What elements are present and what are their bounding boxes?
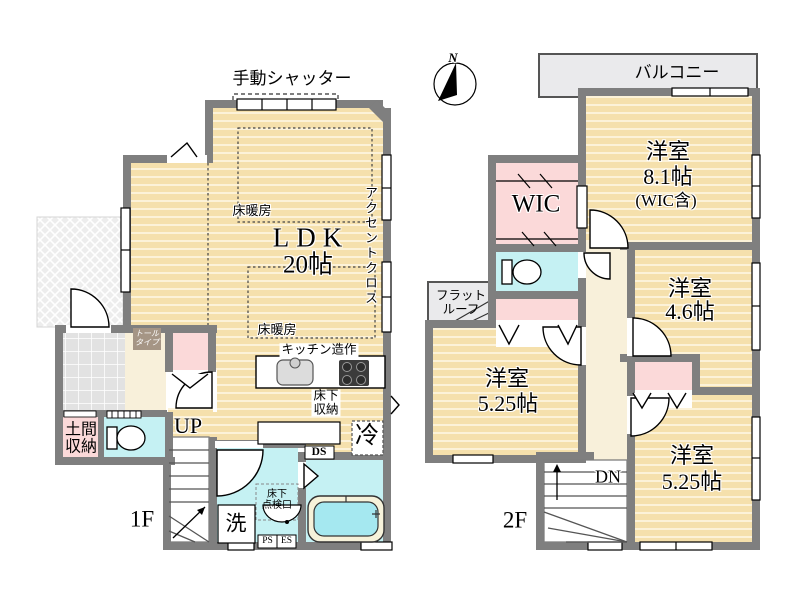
faucet-icon — [290, 358, 300, 368]
floor-heating-label-upper: 床暖房 — [232, 204, 271, 218]
balcony-label: バルコニー — [635, 64, 720, 82]
kitchen-builtin-label: キッチン造作 — [279, 343, 358, 357]
doma-storage-label: 土間 収納 — [65, 422, 97, 457]
wic-label: WIC — [512, 191, 561, 218]
f1-kitchen — [256, 356, 385, 388]
floor1-label: 1F — [130, 508, 154, 533]
room-525R-name: 洋室 — [670, 444, 714, 468]
stairs-up-label: UP — [174, 414, 202, 438]
underfloor-storage-label: 床下 収納 — [311, 390, 340, 417]
ldk-room-size: 20帖 — [283, 252, 333, 279]
room-525L-size: 5.25帖 — [478, 392, 539, 416]
room-46-name: 洋室 — [668, 277, 712, 301]
tall-cabinet-label: トール タイプ — [135, 330, 159, 348]
electric-space-label: ES — [281, 536, 292, 546]
room-main-name: 洋室 — [646, 140, 690, 164]
toilet-2f-icon — [502, 260, 541, 284]
compass-north-label: N — [448, 51, 457, 65]
floor2-label: 2F — [503, 509, 527, 534]
f1-toilet-accordion-door — [107, 411, 141, 418]
room-main-size: 8.1帖 — [643, 165, 693, 189]
accent-cloth-label: アクセントクロス — [363, 186, 377, 306]
wic-door-leaf — [577, 186, 587, 228]
room-525R-size: 5.25帖 — [662, 470, 723, 494]
fridge-label: 冷 — [355, 424, 379, 450]
room-525L-name: 洋室 — [485, 367, 529, 391]
floor-heating-label-lower: 床暖房 — [257, 323, 296, 337]
pipe-space-label: PS — [262, 536, 273, 546]
cupboard — [258, 422, 340, 444]
floor-plan: 手動シャッター LDK 20帖 床暖房 床暖房 アクセントクロス キッチン造作 … — [0, 0, 800, 600]
washer-label: 洗 — [226, 513, 247, 536]
compass-icon — [434, 63, 476, 105]
shutter-label: 手動シャッター — [233, 70, 352, 88]
doma-shelf — [64, 411, 96, 417]
room-46-size: 4.6帖 — [665, 300, 715, 324]
toilet-1f-icon — [107, 426, 145, 450]
ldk-room-name: LDK — [273, 223, 350, 252]
duct-space-label: DS — [312, 446, 327, 458]
flat-roof-label: フラット ルーフ — [436, 290, 486, 317]
inspection-hatch-label: 床下 点検口 — [262, 490, 292, 512]
room-main-note: (WIC含) — [635, 192, 696, 210]
stairs-down-label: DN — [595, 467, 621, 486]
